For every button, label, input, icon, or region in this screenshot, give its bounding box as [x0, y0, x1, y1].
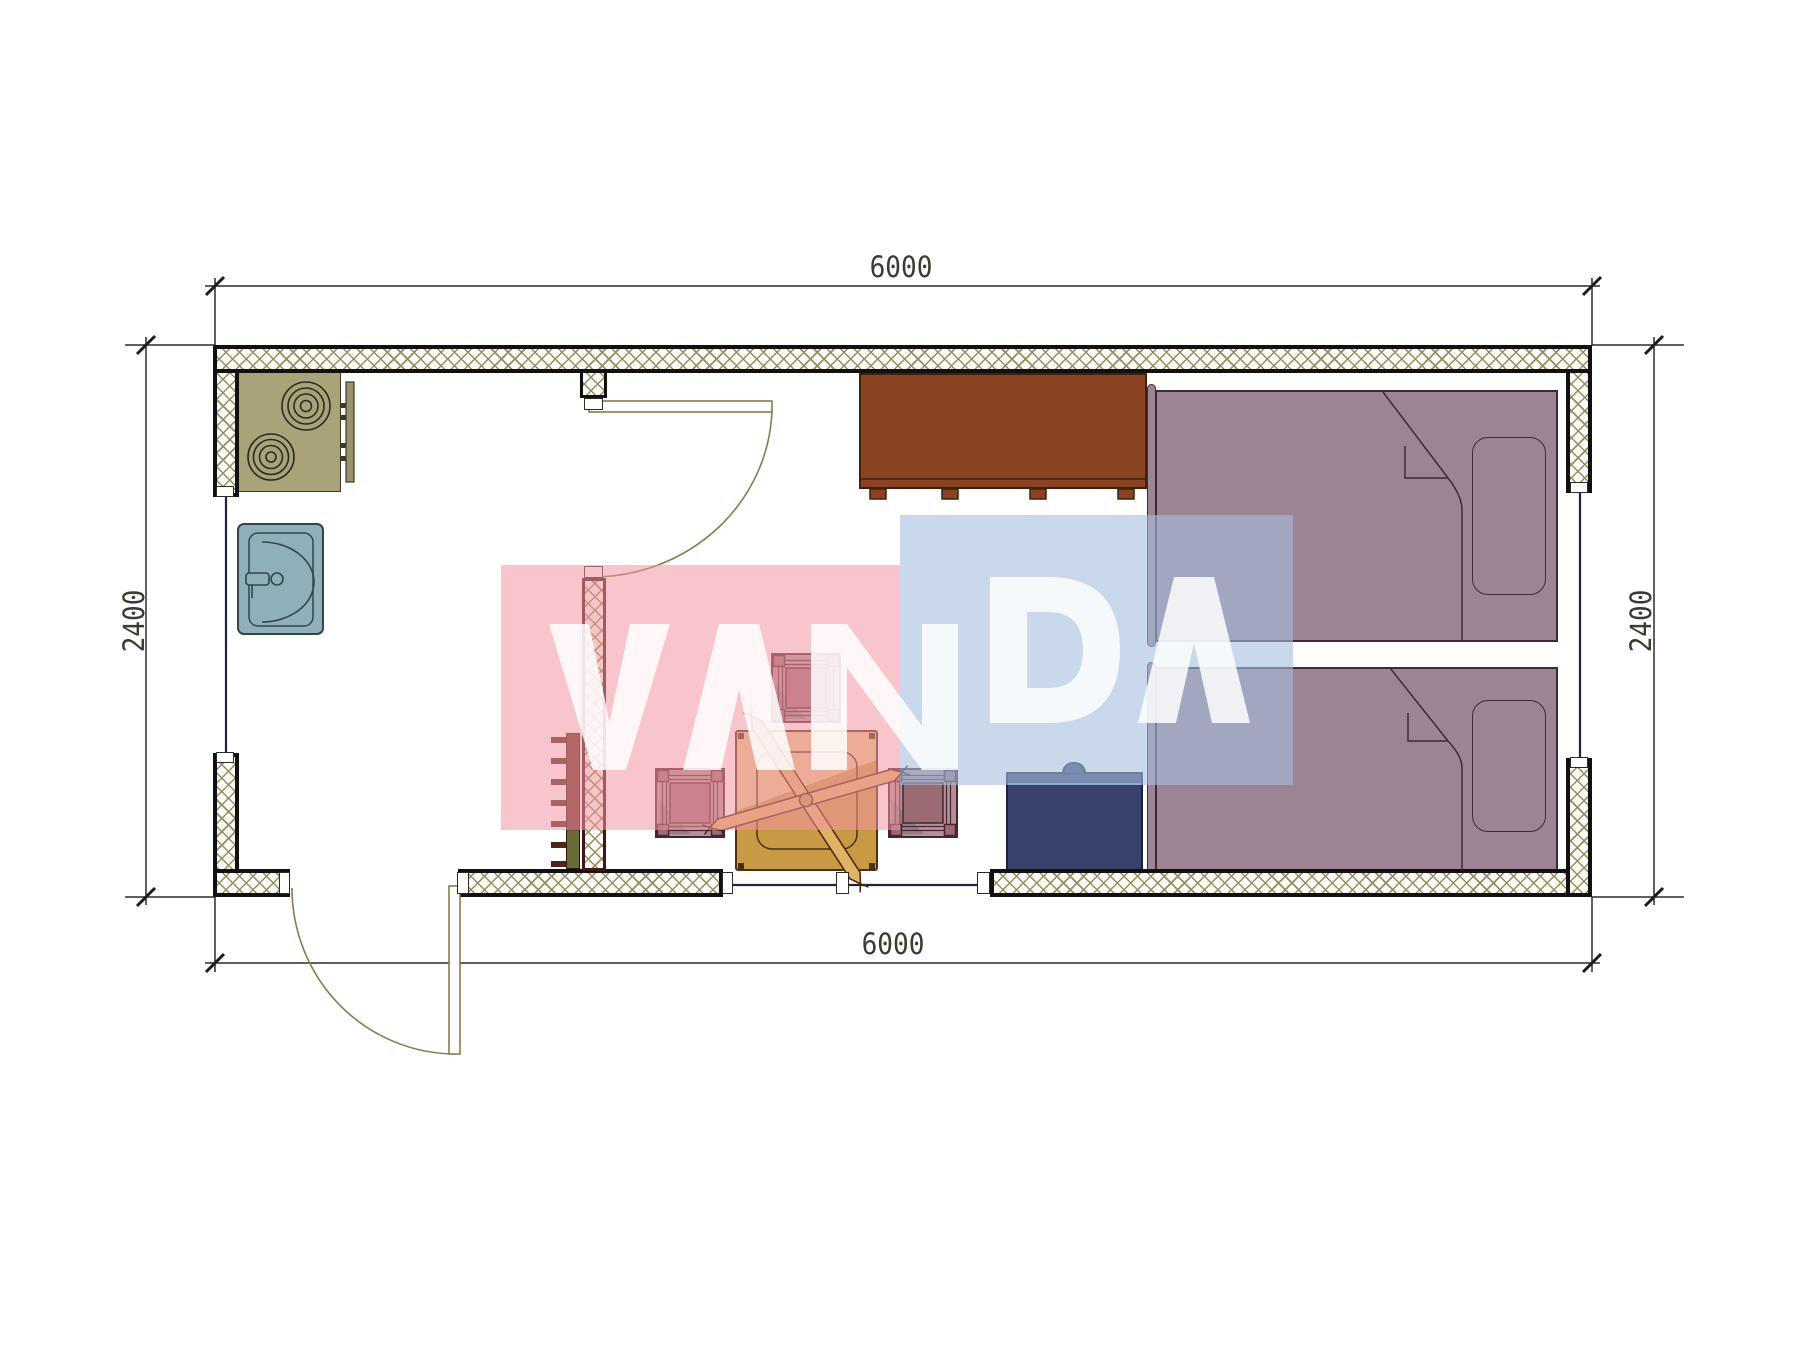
floor-plan: 6000 6000 2400 2400 — [0, 0, 1800, 1350]
letter-v — [549, 624, 670, 770]
watermark-letters-da — [990, 577, 1250, 723]
letter-a — [683, 624, 795, 770]
watermark-text — [0, 0, 1800, 1350]
letter-d — [990, 577, 1120, 723]
letter-a — [1138, 577, 1250, 723]
watermark-letters-van — [549, 624, 958, 770]
letter-n — [811, 624, 958, 770]
